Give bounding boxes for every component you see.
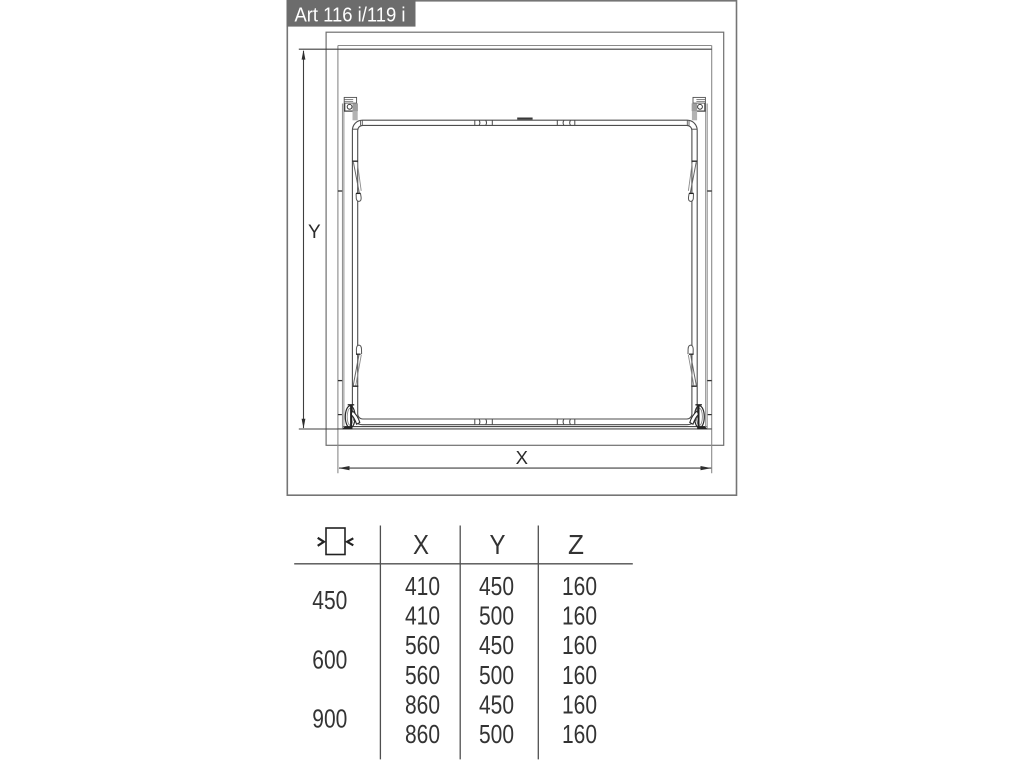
svg-text:450: 450 <box>479 632 514 660</box>
svg-text:500: 500 <box>479 662 514 690</box>
svg-text:500: 500 <box>479 721 514 749</box>
svg-text:Y: Y <box>308 222 321 243</box>
svg-text:560: 560 <box>405 662 440 690</box>
svg-text:600: 600 <box>312 646 347 674</box>
svg-text:500: 500 <box>479 603 514 631</box>
svg-text:450: 450 <box>479 573 514 601</box>
svg-text:160: 160 <box>562 721 597 749</box>
svg-text:160: 160 <box>562 632 597 660</box>
svg-text:160: 160 <box>562 603 597 631</box>
svg-text:560: 560 <box>405 632 440 660</box>
svg-text:450: 450 <box>479 691 514 719</box>
svg-text:160: 160 <box>562 691 597 719</box>
svg-text:160: 160 <box>562 573 597 601</box>
svg-text:860: 860 <box>405 721 440 749</box>
svg-text:450: 450 <box>312 587 347 615</box>
svg-text:410: 410 <box>405 603 440 631</box>
svg-text:Art 116 i/119 i: Art 116 i/119 i <box>295 5 406 27</box>
svg-text:X: X <box>413 529 429 560</box>
svg-text:X: X <box>516 447 528 468</box>
svg-text:410: 410 <box>405 573 440 601</box>
svg-text:900: 900 <box>312 706 347 734</box>
svg-text:860: 860 <box>405 691 440 719</box>
svg-text:Z: Z <box>568 529 584 560</box>
svg-text:160: 160 <box>562 662 597 690</box>
svg-text:Y: Y <box>490 529 506 560</box>
